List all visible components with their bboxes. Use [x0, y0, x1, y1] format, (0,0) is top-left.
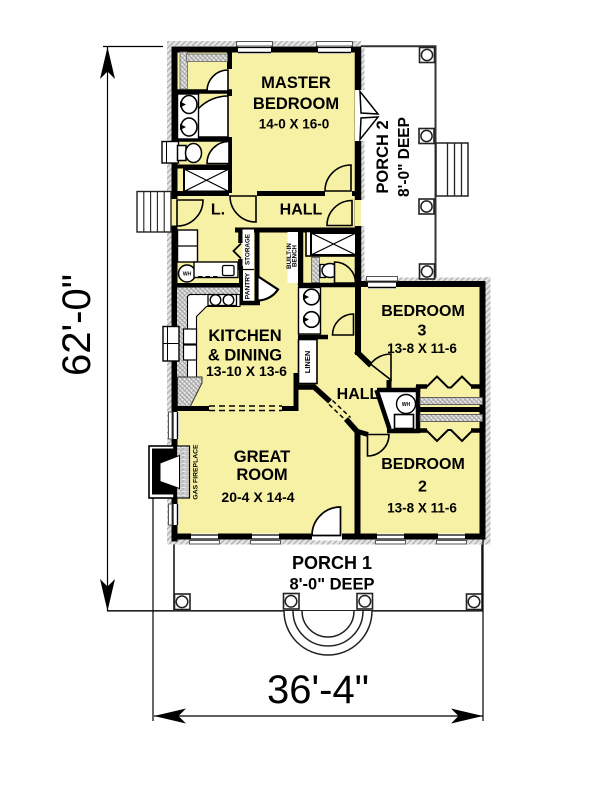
svg-text:BEDROOM: BEDROOM [381, 456, 465, 473]
svg-text:KITCHEN: KITCHEN [208, 327, 281, 345]
svg-text:8'-0" DEEP: 8'-0" DEEP [396, 117, 413, 197]
svg-text:8'-0" DEEP: 8'-0" DEEP [289, 576, 374, 594]
svg-text:14-0 X 16-0: 14-0 X 16-0 [259, 117, 330, 132]
svg-text:20-4 X 14-4: 20-4 X 14-4 [221, 489, 294, 505]
svg-text:13-10 X 13-6: 13-10 X 13-6 [206, 363, 287, 379]
svg-text:62'-0": 62'-0" [55, 274, 99, 376]
svg-text:BEDROOM: BEDROOM [253, 95, 339, 113]
svg-text:HALL: HALL [337, 386, 380, 403]
svg-text:WH: WH [402, 402, 411, 408]
svg-text:LINEN: LINEN [303, 351, 312, 374]
svg-text:BENCH: BENCH [292, 244, 299, 267]
svg-text:PORCH 2: PORCH 2 [374, 120, 392, 193]
svg-text:HALL: HALL [280, 202, 323, 219]
svg-text:WH: WH [183, 272, 192, 278]
svg-text:GAS FIREPLACE: GAS FIREPLACE [193, 444, 200, 500]
svg-text:PORCH 1: PORCH 1 [292, 553, 372, 573]
svg-text:2: 2 [418, 479, 427, 496]
svg-text:36'-4": 36'-4" [267, 668, 369, 712]
svg-text:ROOM: ROOM [236, 466, 287, 484]
svg-text:13-8 X 11-6: 13-8 X 11-6 [387, 341, 457, 356]
svg-text:L.: L. [211, 202, 225, 219]
svg-text:PANTRY: PANTRY [245, 272, 252, 299]
svg-text:3: 3 [418, 323, 427, 340]
svg-text:STORAGE: STORAGE [245, 234, 252, 265]
svg-text:GREAT: GREAT [234, 448, 291, 466]
svg-text:BEDROOM: BEDROOM [381, 303, 465, 320]
svg-text:& DINING: & DINING [208, 347, 282, 365]
svg-text:13-8 X 11-6: 13-8 X 11-6 [387, 501, 457, 516]
svg-text:MASTER: MASTER [261, 74, 331, 92]
